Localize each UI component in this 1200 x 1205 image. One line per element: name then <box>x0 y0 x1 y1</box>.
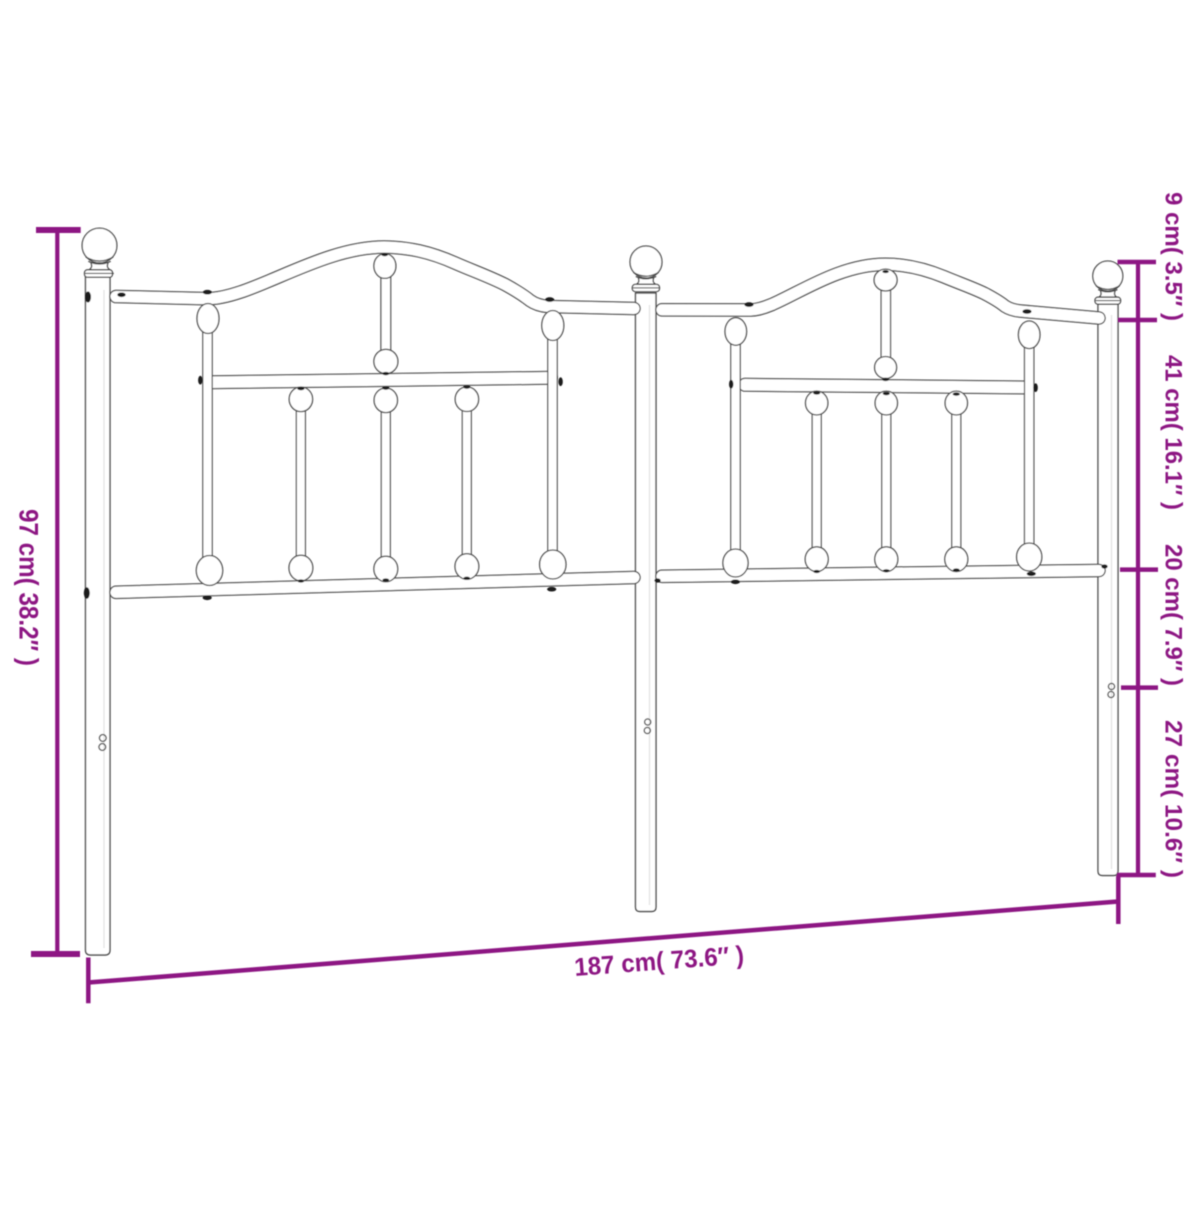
svg-text:97 cm( 38.2″ ): 97 cm( 38.2″ ) <box>14 509 44 666</box>
svg-text:41 cm( 16.1″ ): 41 cm( 16.1″ ) <box>1160 355 1187 510</box>
svg-text:20 cm( 7.9″ ): 20 cm( 7.9″ ) <box>1160 544 1187 686</box>
svg-text:27 cm( 10.6″ ): 27 cm( 10.6″ ) <box>1160 720 1187 878</box>
svg-text:9 cm( 3.5″ ): 9 cm( 3.5″ ) <box>1160 192 1187 321</box>
svg-text:187 cm( 73.6″ ): 187 cm( 73.6″ ) <box>573 941 745 982</box>
